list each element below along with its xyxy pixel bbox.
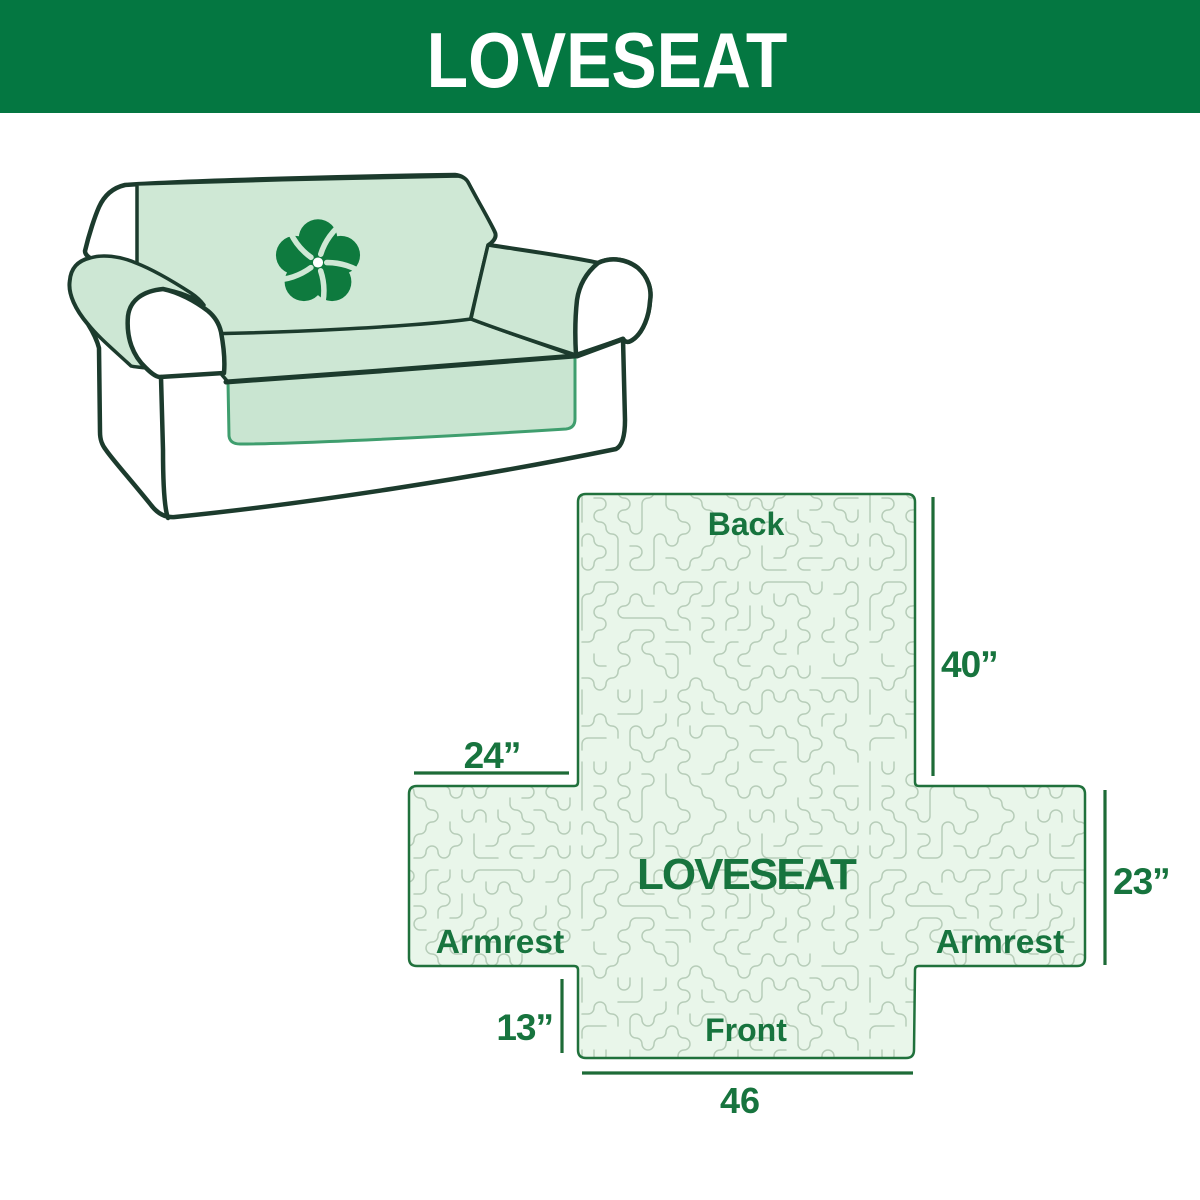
svg-text:Front: Front xyxy=(705,1012,787,1048)
svg-text:LOVESEAT: LOVESEAT xyxy=(637,850,857,899)
svg-text:Armrest: Armrest xyxy=(936,924,1064,961)
svg-text:LOVESEAT: LOVESEAT xyxy=(427,18,788,104)
svg-text:24”: 24” xyxy=(464,735,521,776)
svg-text:Armrest: Armrest xyxy=(436,924,564,961)
svg-text:23”: 23” xyxy=(1113,861,1170,902)
svg-text:40”: 40” xyxy=(941,644,998,685)
svg-text:13”: 13” xyxy=(496,1007,553,1048)
svg-text:Back: Back xyxy=(708,506,785,542)
svg-text:46: 46 xyxy=(720,1080,760,1121)
